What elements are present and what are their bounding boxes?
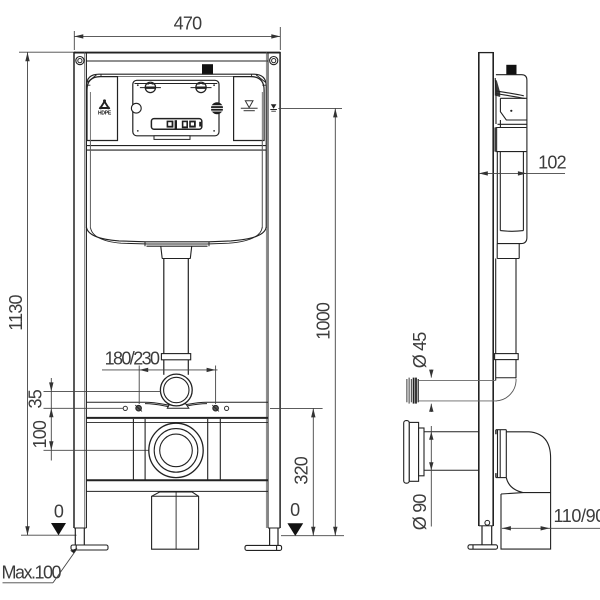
svg-text:100: 100 (30, 420, 50, 448)
svg-text:320: 320 (292, 456, 312, 484)
svg-text:1000: 1000 (314, 302, 334, 340)
svg-text:102: 102 (538, 153, 566, 173)
svg-text:0: 0 (290, 500, 300, 520)
svg-text:0: 0 (54, 502, 64, 522)
svg-text:180/230: 180/230 (105, 349, 160, 369)
svg-text:Ø 45: Ø 45 (410, 332, 430, 369)
svg-text:Max.100: Max.100 (2, 562, 62, 582)
svg-text:1130: 1130 (6, 294, 26, 330)
svg-text:35: 35 (25, 389, 45, 408)
svg-text:Ø 90: Ø 90 (410, 494, 430, 531)
svg-text:HDPE: HDPE (98, 110, 112, 116)
svg-text:470: 470 (174, 14, 202, 34)
svg-text:110/90: 110/90 (554, 506, 600, 526)
